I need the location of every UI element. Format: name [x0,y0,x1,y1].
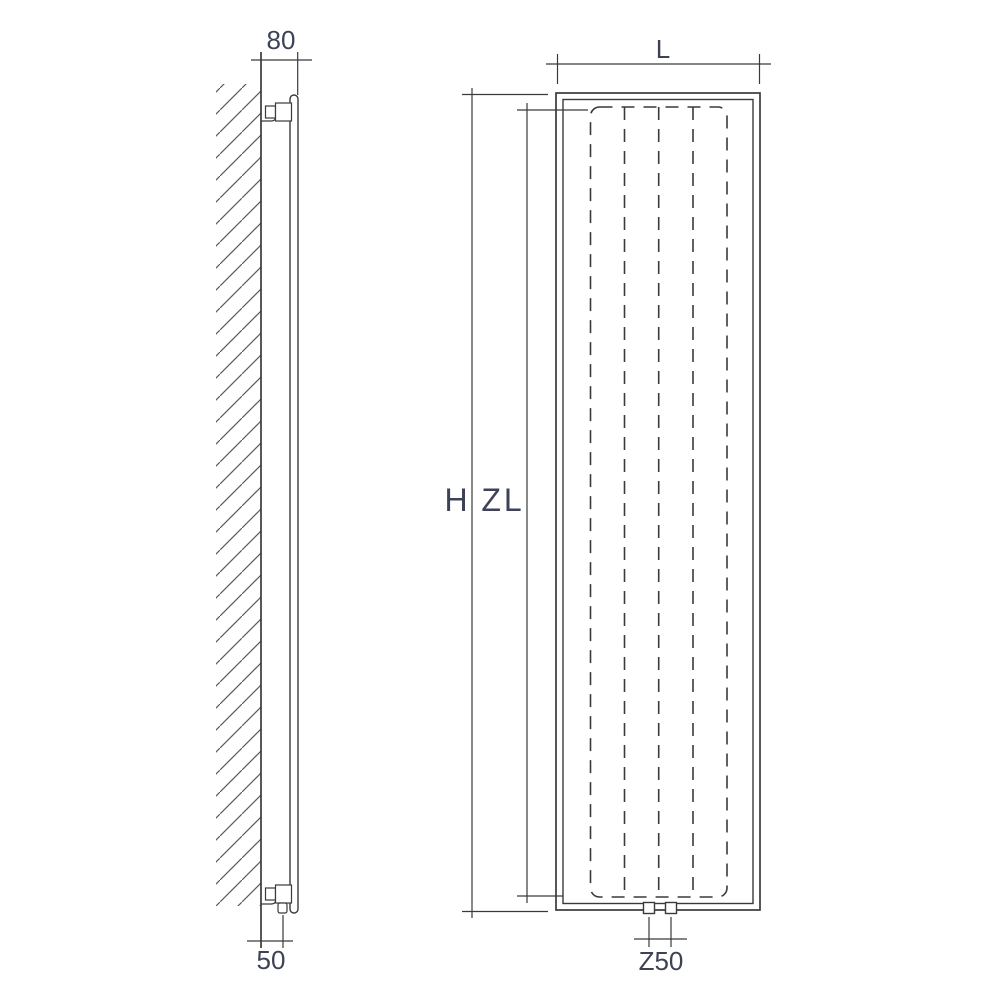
pipe-connection-stub [278,903,287,913]
front-view: L H ZL Z50 [444,34,771,976]
radiator-panel-profile [290,95,298,913]
valve-stub-left [644,903,655,914]
dimension-Z50: Z50 [634,917,687,976]
dim-Z50-label: Z50 [639,946,684,976]
drawing-svg: 80 50 [0,0,1000,1000]
radiator-technical-drawing: 80 50 [0,0,1000,1000]
dimension-50: 50 [247,915,293,975]
top-bracket-clip [266,106,276,118]
valve-stub-right [666,903,677,914]
top-bracket [261,103,292,121]
bottom-bracket-body [276,885,292,903]
dim-80-label: 80 [267,25,296,55]
dim-L-label: L [656,34,670,64]
dim-50-label: 50 [257,945,286,975]
dim-ZL-label: ZL [481,482,524,518]
radiator-outer-outline [556,93,760,910]
side-view: 80 50 [216,25,312,975]
dimension-L: L [546,34,771,84]
bottom-bracket [261,885,292,913]
bottom-bracket-clip [266,888,276,900]
dim-H-label: H [444,482,467,518]
wall-hatching [216,84,261,906]
top-bracket-body [276,103,292,121]
